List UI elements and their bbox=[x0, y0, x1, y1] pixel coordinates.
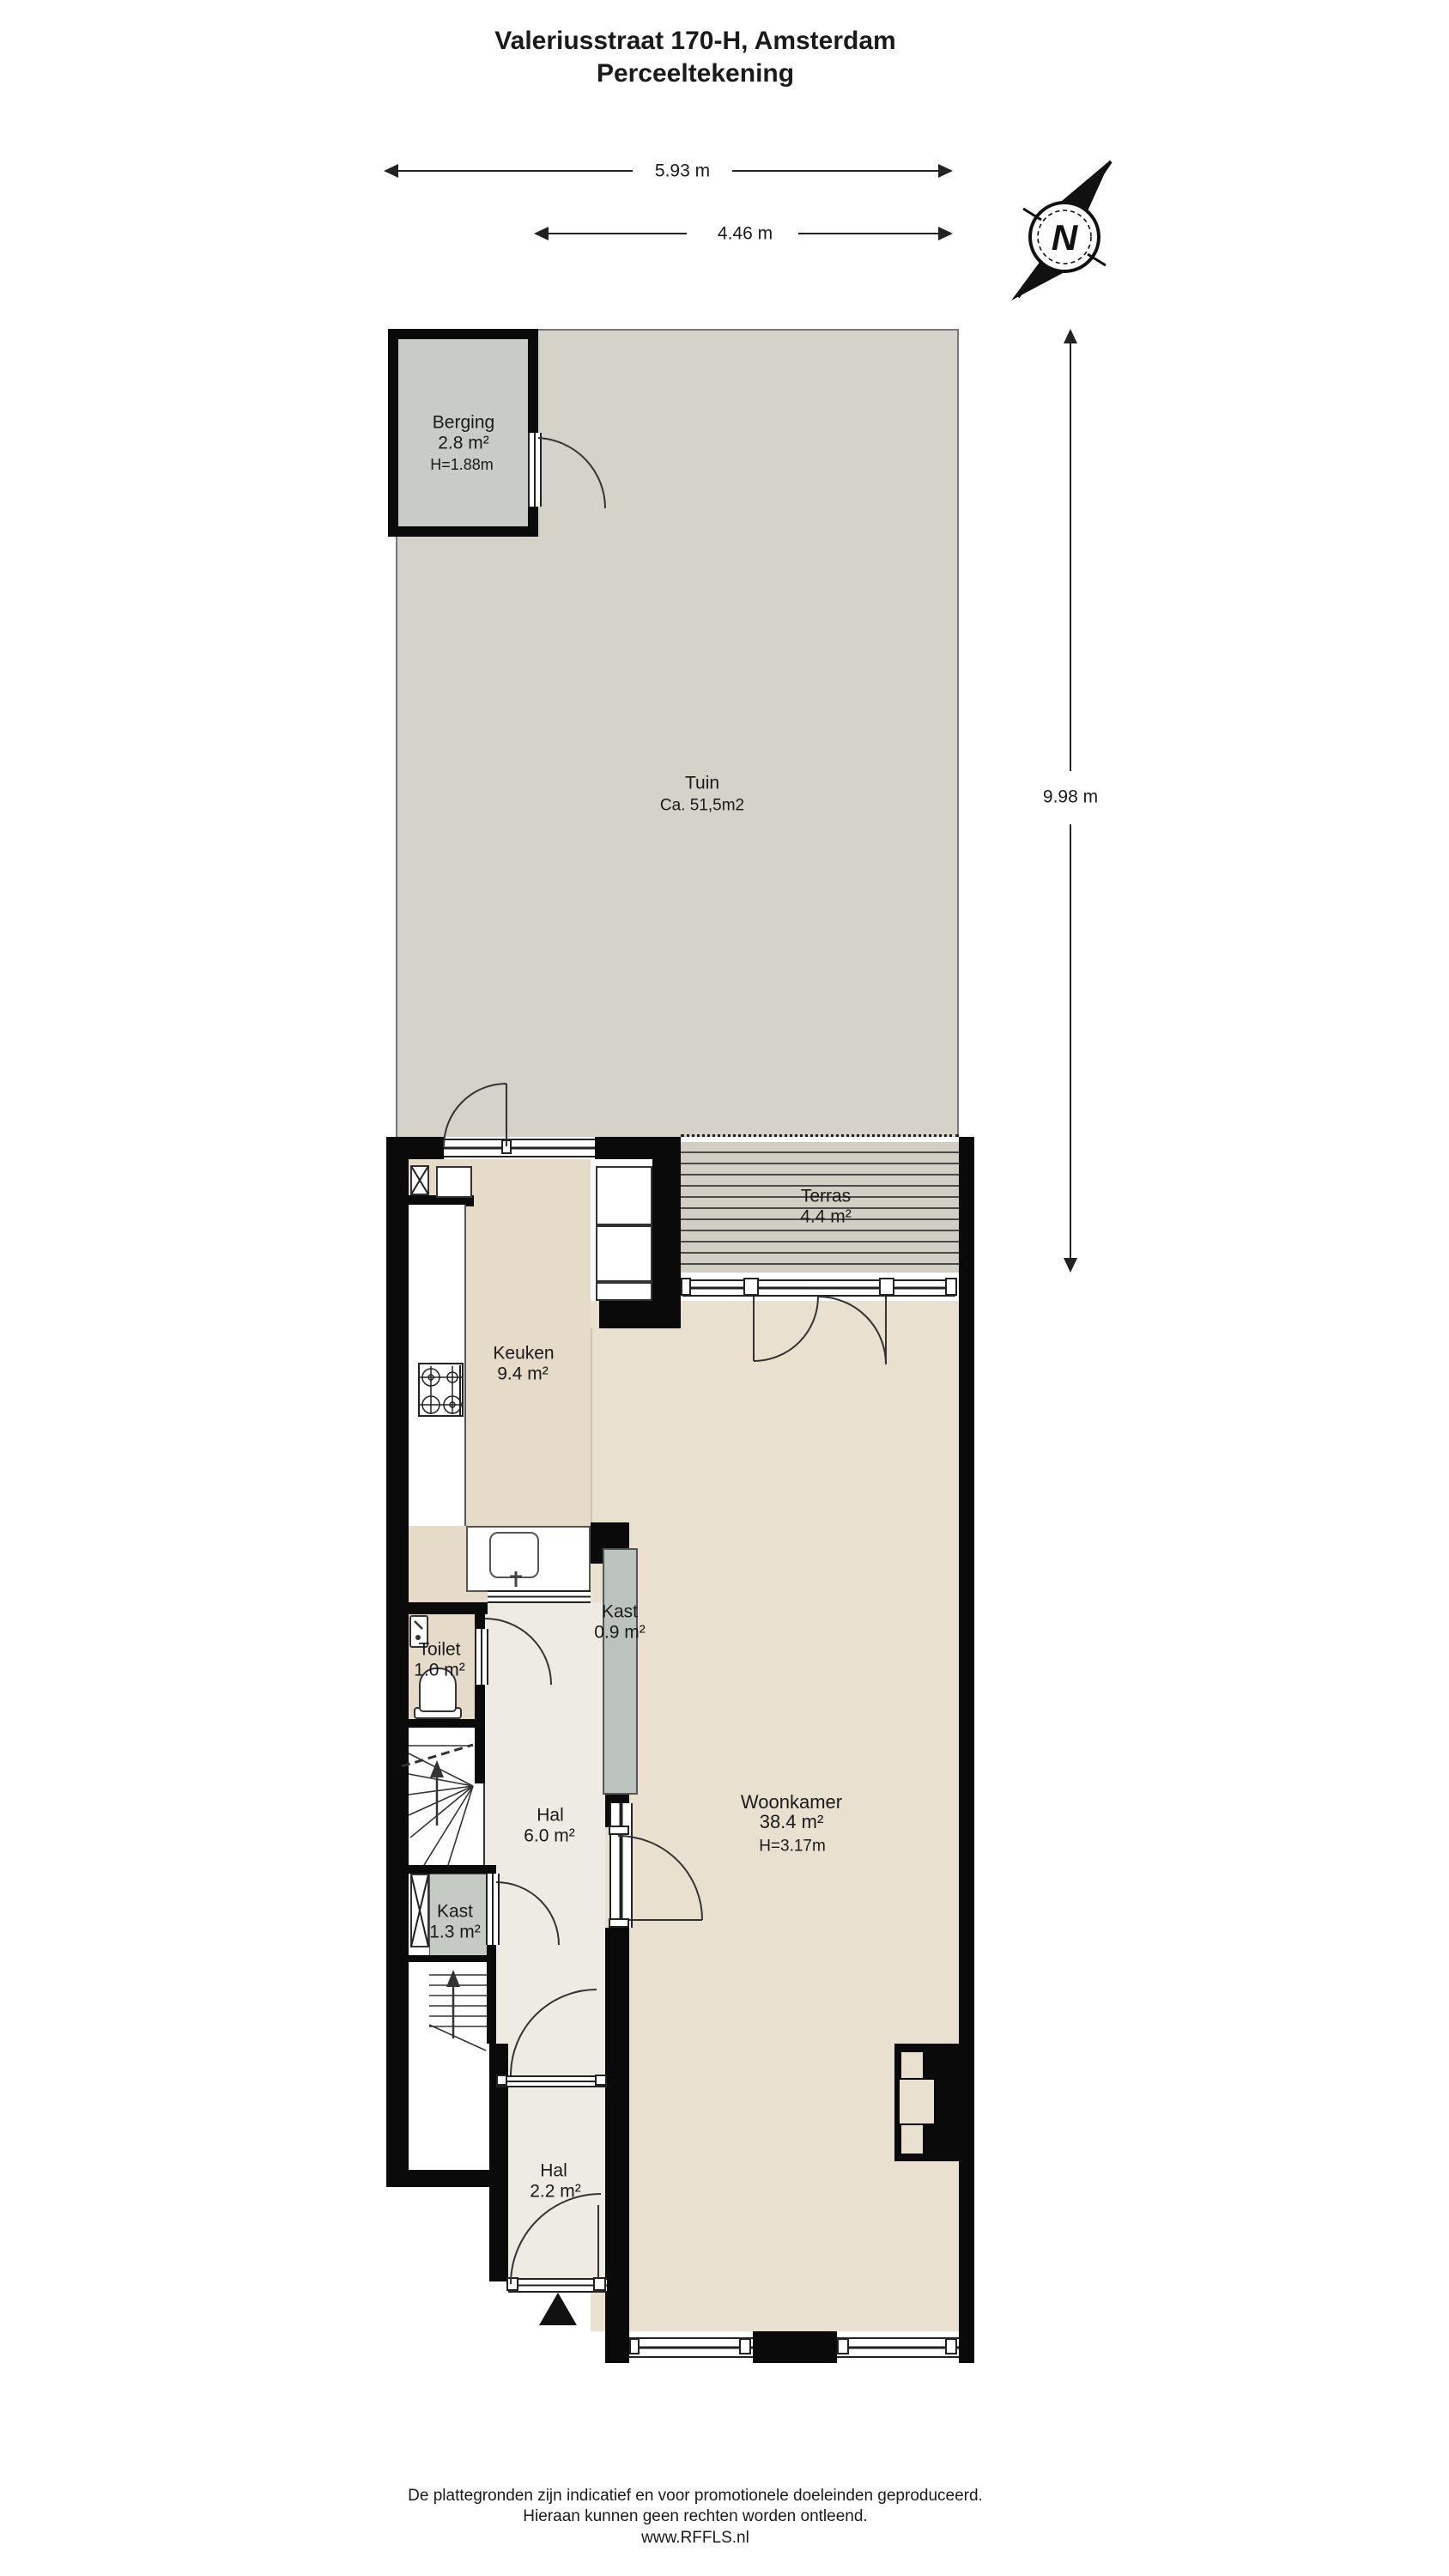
keuken-area: 9.4 m² bbox=[497, 1365, 549, 1383]
svg-text:N: N bbox=[1052, 217, 1079, 258]
kitchen-hall-glazing bbox=[488, 1590, 591, 1603]
woonkamer-height: H=3.17m bbox=[759, 1838, 826, 1855]
dimension-total-width: 5.93 m bbox=[649, 162, 716, 180]
page-title: Valeriusstraat 170-H, Amsterdam bbox=[494, 27, 895, 56]
window-mullion bbox=[945, 2338, 957, 2354]
hal-entrance-label: Hal bbox=[540, 2162, 567, 2180]
toilet-area: 1.0 m² bbox=[414, 1662, 465, 1680]
berging-height: H=1.88m bbox=[430, 457, 494, 472]
wall bbox=[487, 1962, 496, 2044]
door-frame-block bbox=[593, 2277, 606, 2291]
hal-label: Hal bbox=[537, 1807, 564, 1825]
window-mullion bbox=[681, 1278, 691, 1296]
garden-boundary-top bbox=[538, 329, 959, 331]
window-mullion bbox=[739, 2338, 751, 2354]
keuken-label: Keuken bbox=[493, 1345, 554, 1363]
berging-door bbox=[528, 433, 542, 507]
footer-disclaimer-1: De plattegronden zijn indicatief en voor… bbox=[408, 2487, 983, 2506]
entrance-arrow bbox=[539, 2293, 577, 2325]
wall bbox=[475, 1685, 485, 1783]
hal-entrance-area: 2.2 m² bbox=[530, 2183, 581, 2201]
wall bbox=[386, 1955, 496, 1962]
woonkamer-area: 38.4 m² bbox=[760, 1813, 824, 1832]
dimension-garden-depth: 9.98 m bbox=[1037, 788, 1104, 806]
stair-open-edge bbox=[483, 1783, 485, 1865]
berging-label: Berging bbox=[433, 414, 494, 432]
kast-small-room bbox=[603, 1548, 638, 1795]
rear-facade-window bbox=[682, 1279, 955, 1297]
bottom-window-left bbox=[629, 2337, 753, 2358]
terras-label: Terras bbox=[801, 1188, 851, 1206]
duct-shaft-icon bbox=[410, 1874, 429, 1947]
staircase-upper bbox=[409, 1728, 475, 1865]
kitchen-cupboard bbox=[596, 1225, 652, 1282]
staircase-lower bbox=[429, 1962, 487, 2044]
floor-plan: Valeriusstraat 170-H, Amsterdam Perceelt… bbox=[0, 0, 1449, 2576]
north-compass-icon: N bbox=[1011, 160, 1111, 301]
hal-area: 6.0 m² bbox=[524, 1827, 575, 1845]
kast-small-area: 0.9 m² bbox=[594, 1624, 646, 1642]
terras-area: 4.4 m² bbox=[800, 1208, 852, 1226]
hall-living-door bbox=[609, 1827, 633, 1928]
page-subtitle: Perceeltekening bbox=[597, 59, 794, 88]
wall bbox=[386, 1137, 444, 1159]
stove-icon bbox=[418, 1363, 464, 1417]
footer-disclaimer-2: Hieraan kunnen geen rechten worden ontle… bbox=[523, 2507, 867, 2526]
wall bbox=[386, 1719, 485, 1728]
terras-boundary-dotted bbox=[681, 1134, 959, 1137]
window-mullion bbox=[945, 1278, 957, 1296]
wall bbox=[599, 1301, 681, 1328]
wall bbox=[475, 1614, 485, 1629]
window-mullion bbox=[629, 2338, 640, 2354]
wall bbox=[386, 1865, 496, 1874]
berging-area: 2.8 m² bbox=[438, 434, 489, 453]
wall bbox=[386, 1137, 409, 2187]
duct-shaft-icon bbox=[410, 1165, 429, 1195]
wall bbox=[959, 1137, 974, 2363]
wall bbox=[652, 1137, 681, 1301]
garden-boundary-left bbox=[396, 537, 397, 1137]
door-frame-block bbox=[496, 2075, 507, 2086]
door-frame-block bbox=[609, 1826, 629, 1835]
hall-inner-door bbox=[496, 2075, 607, 2087]
kitchen-cupboard bbox=[596, 1282, 652, 1301]
window-mullion bbox=[837, 2338, 849, 2354]
garden-boundary-right bbox=[957, 329, 959, 1137]
kast-large-label: Kast bbox=[437, 1903, 473, 1921]
window-mullion bbox=[879, 1278, 894, 1296]
dimension-house-width: 4.46 m bbox=[712, 225, 779, 243]
kitchen-garden-window bbox=[444, 1139, 595, 1157]
entrance-door bbox=[508, 2278, 607, 2293]
woonkamer-label: Woonkamer bbox=[741, 1793, 842, 1812]
chimney-recess bbox=[900, 2078, 936, 2125]
kast-large-door bbox=[486, 1874, 500, 1945]
wall bbox=[605, 1928, 629, 2363]
wall bbox=[753, 2331, 837, 2363]
footer-website: www.RFFLS.nl bbox=[641, 2529, 749, 2548]
living-door-sidelight bbox=[609, 1803, 633, 1827]
wall bbox=[386, 2170, 508, 2187]
kast-large-area: 1.3 m² bbox=[429, 1923, 481, 1941]
sink-icon bbox=[489, 1532, 539, 1578]
door-frame-block bbox=[595, 2075, 607, 2086]
door-frame-block bbox=[506, 2277, 518, 2291]
bottom-window-right bbox=[837, 2337, 959, 2358]
kast-small-label: Kast bbox=[602, 1603, 638, 1621]
wall bbox=[386, 1602, 488, 1614]
toilet-label: Toilet bbox=[418, 1641, 460, 1659]
window-mullion bbox=[501, 1139, 512, 1154]
stair-landing bbox=[410, 2044, 489, 2170]
kitchen-living-boundary bbox=[591, 1328, 592, 1522]
wall bbox=[487, 1945, 496, 1955]
toilet-door bbox=[475, 1629, 488, 1685]
tuin-area: Ca. 51,5m2 bbox=[660, 798, 744, 814]
kitchen-cabinet bbox=[436, 1166, 472, 1198]
tuin-label: Tuin bbox=[685, 775, 719, 793]
window-mullion bbox=[743, 1278, 759, 1296]
kitchen-cupboard bbox=[596, 1166, 652, 1225]
door-frame-block bbox=[609, 1918, 629, 1928]
